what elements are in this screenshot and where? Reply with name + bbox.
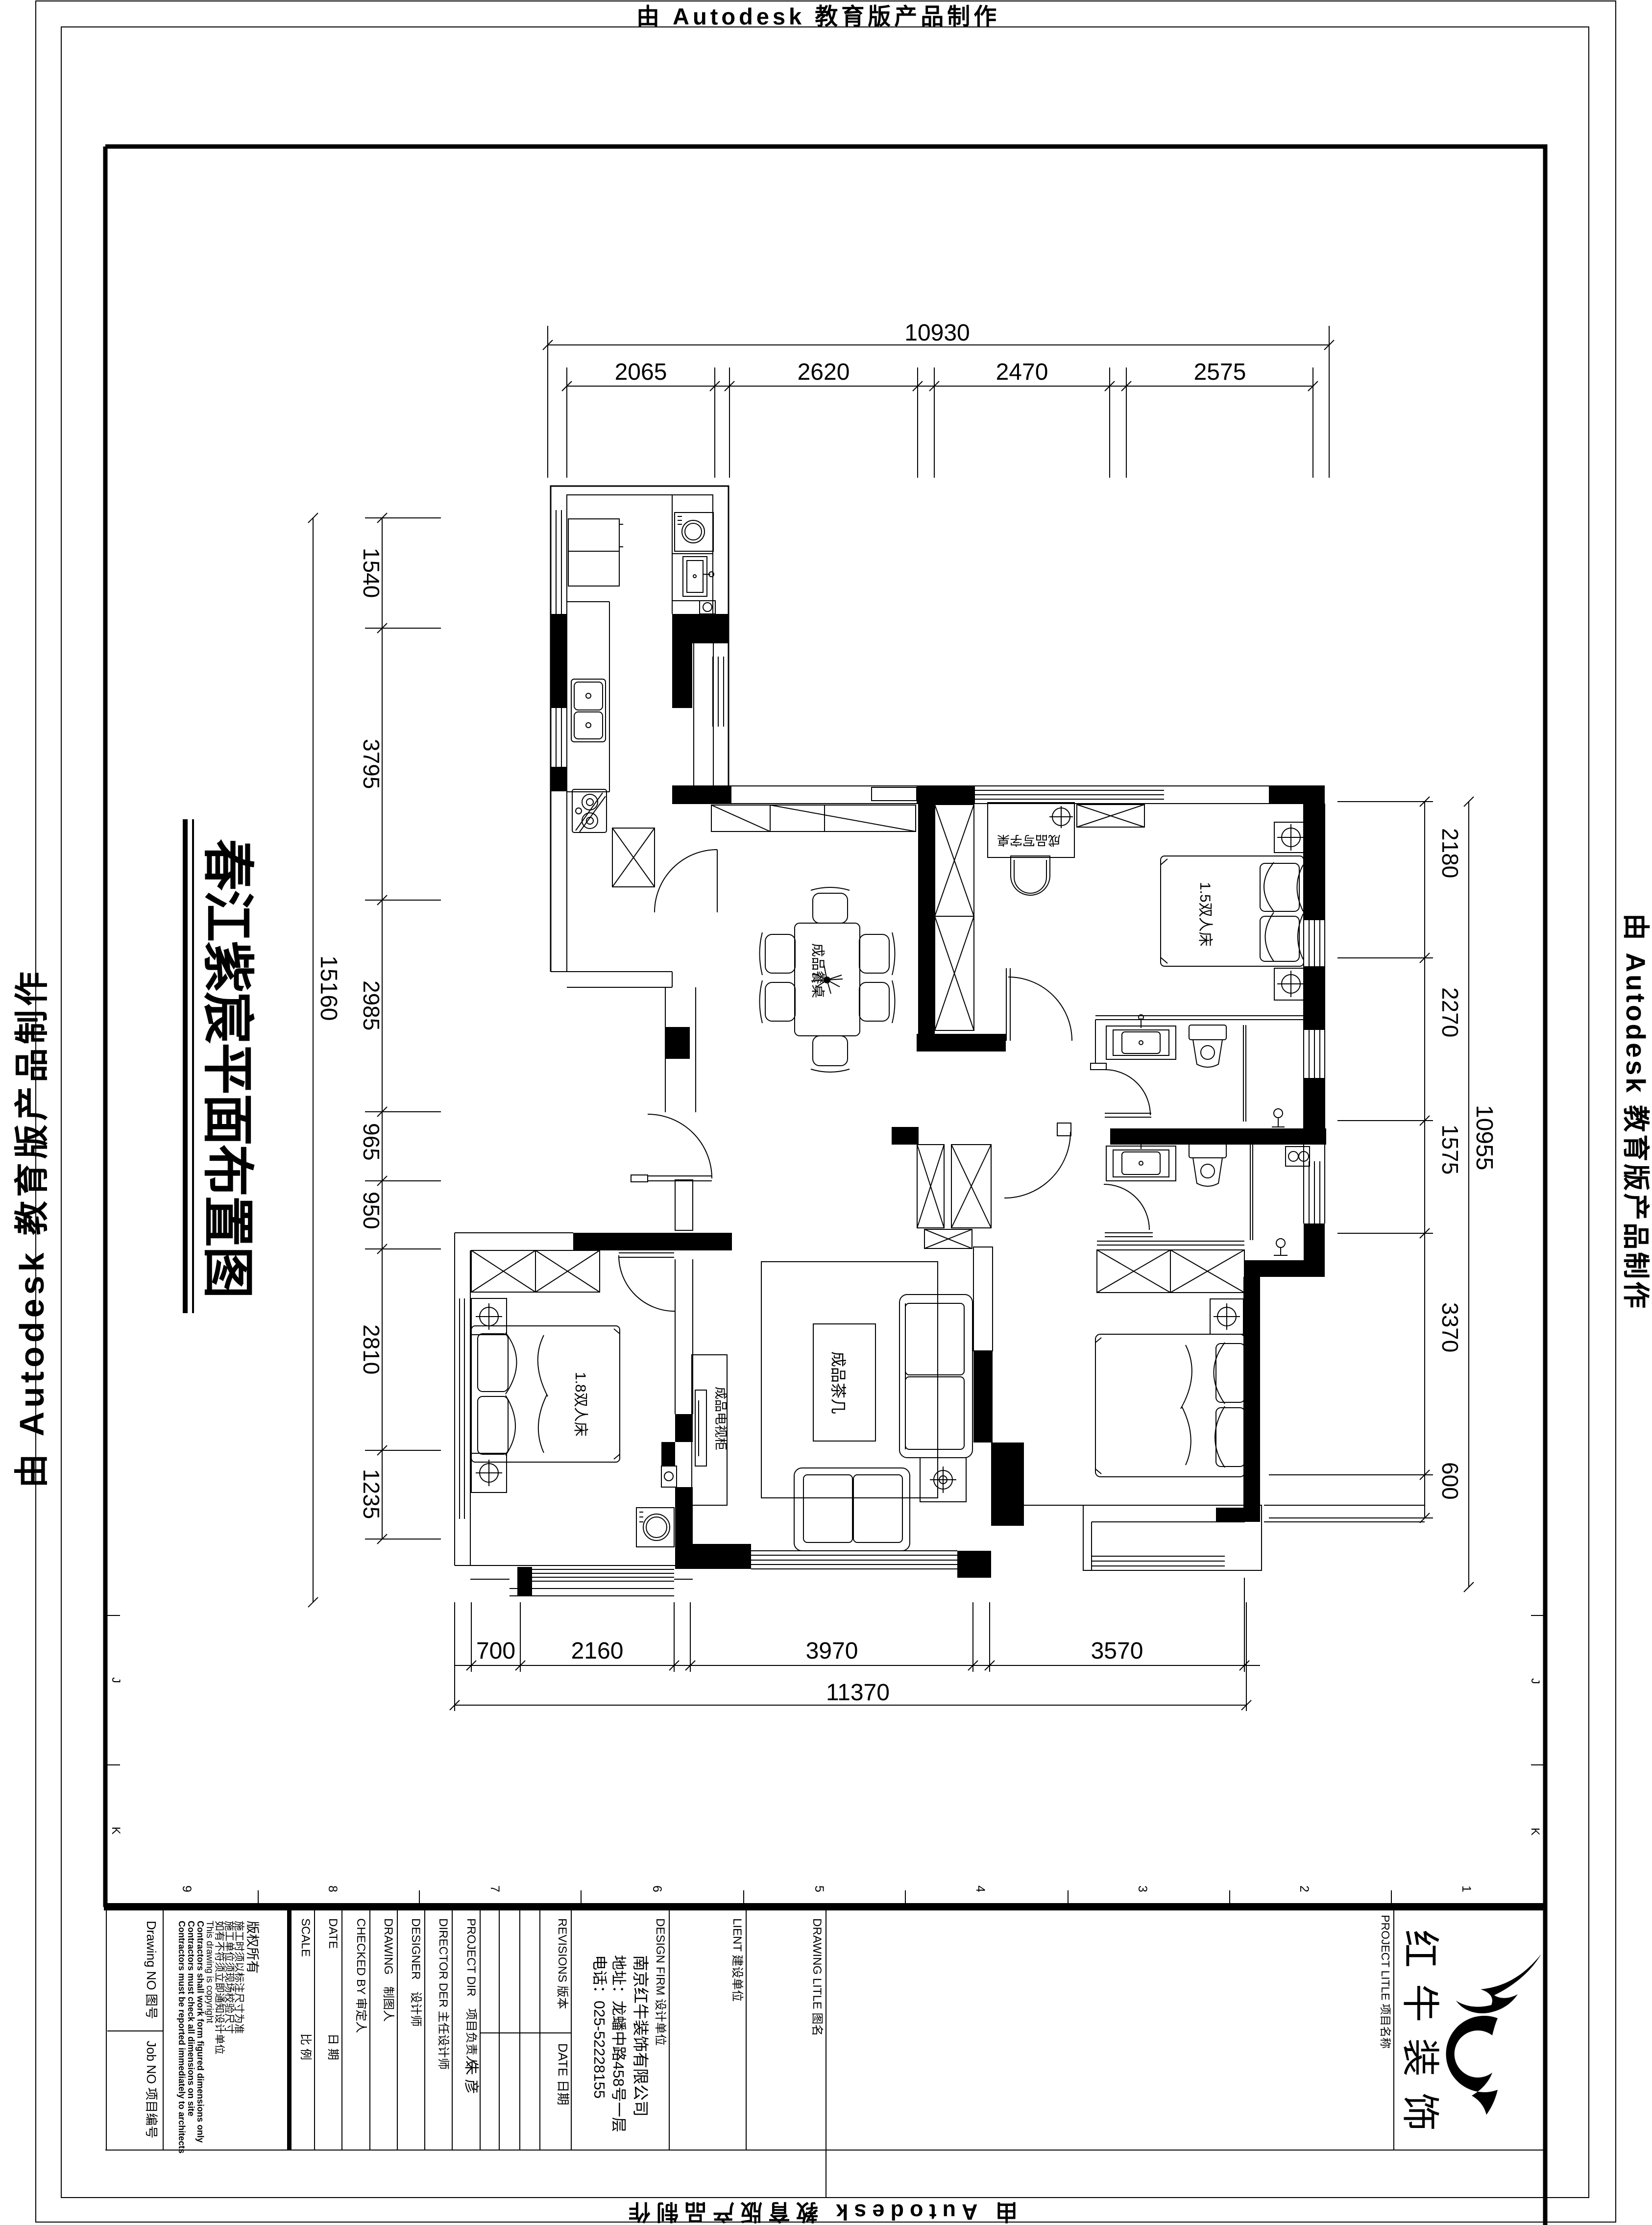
svg-text:3: 3: [1136, 1885, 1149, 1892]
svg-text:600: 600: [1437, 1462, 1463, 1500]
svg-text:CHECKED BY 审定人: CHECKED BY 审定人: [354, 1918, 367, 2033]
svg-text:2810: 2810: [359, 1324, 384, 1374]
svg-text:This drawing is copyright: This drawing is copyright: [204, 1921, 215, 2024]
svg-text:5: 5: [812, 1885, 826, 1892]
svg-text:2180: 2180: [1437, 828, 1463, 878]
svg-text:10930: 10930: [904, 320, 970, 346]
svg-text:红牛装饰: 红牛装饰: [1399, 1930, 1442, 2147]
svg-text:8: 8: [326, 1885, 340, 1892]
svg-text:K: K: [109, 1827, 122, 1834]
svg-text:PROJECT LITLE 项目名称: PROJECT LITLE 项目名称: [1379, 1915, 1392, 2049]
svg-text:DATE: DATE: [326, 1918, 340, 1949]
svg-text:成品餐桌: 成品餐桌: [810, 943, 826, 998]
svg-text:2620: 2620: [798, 359, 850, 385]
svg-text:9: 9: [180, 1885, 194, 1892]
svg-text:日 期: 日 期: [326, 2033, 340, 2060]
svg-text:J: J: [1529, 1678, 1542, 1684]
svg-text:朱 彦: 朱 彦: [463, 2060, 479, 2094]
svg-text:DESIGNER 设计师: DESIGNER 设计师: [409, 1918, 422, 2027]
svg-text:如有不符须立即通知设计单位: 如有不符须立即通知设计单位: [214, 1921, 225, 2054]
svg-text:7: 7: [488, 1885, 502, 1892]
svg-text:电话：025-52228155: 电话：025-52228155: [591, 1955, 608, 2099]
svg-text:DIRECTOR DER 主任设计师: DIRECTOR DER 主任设计师: [437, 1918, 450, 2070]
svg-text:950: 950: [359, 1192, 384, 1229]
svg-text:Contractors must check all dim: Contractors must check all dimensions on…: [186, 1921, 196, 2116]
svg-text:PROJECT DIR 项目负责人: PROJECT DIR 项目负责人: [464, 1918, 478, 2067]
svg-text:DRAWING 制图人: DRAWING 制图人: [382, 1918, 395, 2022]
svg-text:南京红牛装饰有限公司: 南京红牛装饰有限公司: [632, 1955, 650, 2117]
svg-text:2985: 2985: [359, 980, 384, 1030]
svg-text:由 Autodesk 教育版产品制作: 由 Autodesk 教育版产品制作: [1621, 913, 1651, 1311]
svg-text:2160: 2160: [571, 1638, 624, 1664]
svg-text:成品电视柜: 成品电视柜: [713, 1387, 728, 1450]
svg-text:4: 4: [973, 1885, 987, 1892]
svg-text:Contractors must be reported i: Contractors must be reported immediately…: [177, 1921, 187, 2153]
svg-text:2575: 2575: [1194, 359, 1246, 385]
svg-text:3370: 3370: [1437, 1302, 1463, 1352]
svg-text:REVISIONS 版本: REVISIONS 版本: [556, 1918, 569, 2009]
svg-text:DESIGN FIRM 设计单位: DESIGN FIRM 设计单位: [654, 1918, 667, 2046]
svg-text:由 Autodesk 教育版产品制作: 由 Autodesk 教育版产品制作: [623, 2200, 1018, 2225]
svg-text:由 Autodesk 教育版产品制作: 由 Autodesk 教育版产品制作: [13, 968, 51, 1488]
svg-text:版权所有: 版权所有: [245, 1921, 260, 1974]
svg-text:成品茶几: 成品茶几: [829, 1351, 847, 1414]
svg-text:Job NO 项目编号: Job NO 项目编号: [144, 2041, 159, 2138]
svg-text:LIENT 建设单位: LIENT 建设单位: [730, 1918, 744, 2002]
svg-text:3795: 3795: [359, 739, 384, 789]
svg-text:1: 1: [1459, 1885, 1473, 1892]
svg-text:比 例: 比 例: [299, 2033, 312, 2060]
svg-text:成品写字桌: 成品写字桌: [997, 833, 1061, 848]
svg-text:3970: 3970: [806, 1638, 858, 1664]
svg-text:3570: 3570: [1091, 1638, 1143, 1664]
svg-text:2065: 2065: [615, 359, 667, 385]
svg-text:2270: 2270: [1437, 987, 1463, 1037]
svg-text:1575: 1575: [1437, 1125, 1463, 1174]
svg-text:1.8双人床: 1.8双人床: [572, 1372, 588, 1437]
svg-text:1.5双人床: 1.5双人床: [1197, 882, 1213, 947]
svg-text:2470: 2470: [996, 359, 1048, 385]
svg-text:1235: 1235: [359, 1469, 384, 1519]
svg-text:Contractors shall work form fi: Contractors shall work form figured dime…: [195, 1921, 205, 2143]
svg-text:春江紫宸平面布置图: 春江紫宸平面布置图: [198, 839, 256, 1297]
svg-text:1540: 1540: [359, 548, 384, 598]
svg-text:700: 700: [476, 1638, 515, 1664]
svg-text:地址：龙蟠中路458号一层: 地址：龙蟠中路458号一层: [610, 1955, 627, 2132]
svg-text:由 Autodesk 教育版产品制作: 由 Autodesk 教育版产品制作: [636, 3, 1000, 29]
svg-text:DATE 日期: DATE 日期: [556, 2043, 570, 2105]
svg-text:DRAWING LITLE 图名: DRAWING LITLE 图名: [810, 1918, 824, 2036]
svg-text:SCALE: SCALE: [299, 1918, 312, 1957]
svg-text:10955: 10955: [1471, 1105, 1497, 1170]
svg-text:965: 965: [359, 1123, 384, 1161]
svg-text:6: 6: [650, 1885, 664, 1892]
svg-text:11370: 11370: [826, 1680, 890, 1706]
svg-text:2: 2: [1297, 1885, 1311, 1892]
svg-text:Drawing NO 图号: Drawing NO 图号: [144, 1921, 159, 2019]
svg-text:J: J: [109, 1677, 122, 1683]
svg-text:15160: 15160: [316, 955, 341, 1021]
svg-text:K: K: [1529, 1828, 1542, 1835]
